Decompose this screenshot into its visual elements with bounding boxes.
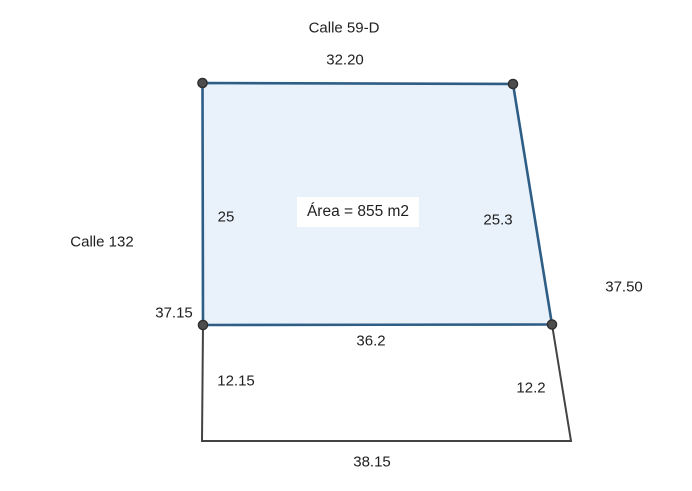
street-left-label: Calle 132 <box>70 233 133 250</box>
lot-survey-diagram: Calle 59-D Calle 132 32.20 25 25.3 36.2 … <box>0 0 692 491</box>
vertex-point-bottom-right[interactable] <box>547 320 556 329</box>
area-label: Área = 855 m2 <box>297 197 419 227</box>
vertex-point-top-right[interactable] <box>508 79 517 88</box>
adjacent-lot-left-length-label: 12.15 <box>217 372 255 389</box>
adjacent-lot-bottom-length-label: 38.15 <box>353 453 391 470</box>
vertex-point-top-left[interactable] <box>198 78 207 87</box>
overall-right-length-label: 37.50 <box>605 278 643 295</box>
parcel-left-length-label: 25 <box>218 208 235 225</box>
street-top-label: Calle 59-D <box>309 19 380 36</box>
overall-left-length-label: 37.15 <box>155 304 193 321</box>
parcel-bottom-length-label: 36.2 <box>356 332 385 349</box>
parcel-right-length-label: 25.3 <box>483 211 512 228</box>
adjacent-lot-right-length-label: 12.2 <box>516 379 545 396</box>
parcel-top-length-label: 32.20 <box>326 51 364 68</box>
vertex-point-bottom-left[interactable] <box>198 320 207 329</box>
